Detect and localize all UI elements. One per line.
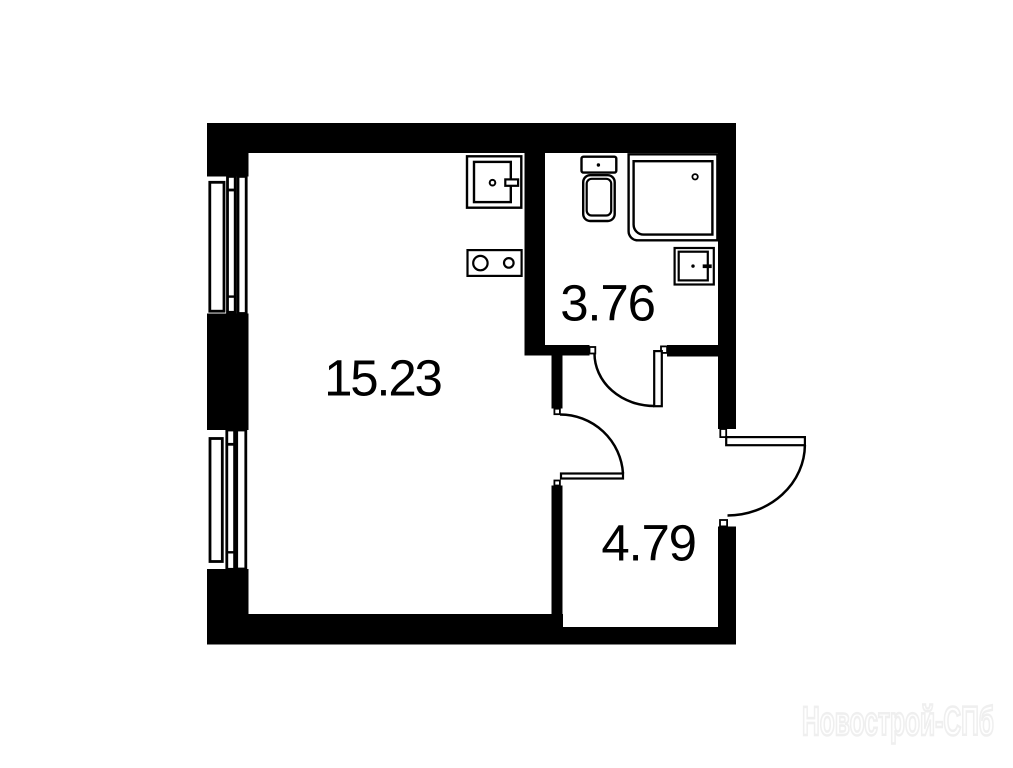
svg-text:15.23: 15.23 [324,350,441,407]
svg-text:Новострой-СПб: Новострой-СПб [802,699,994,745]
svg-text:4.79: 4.79 [601,515,695,572]
svg-text:3.76: 3.76 [560,275,654,332]
